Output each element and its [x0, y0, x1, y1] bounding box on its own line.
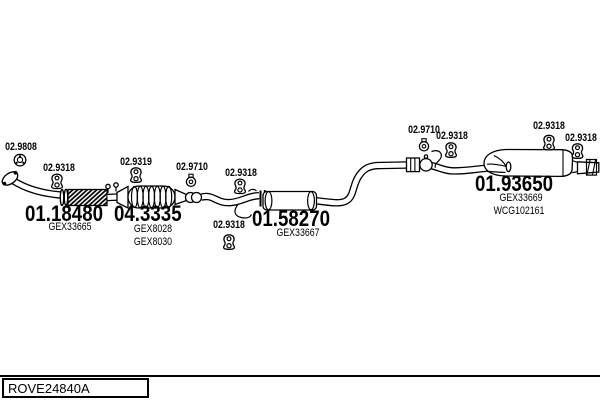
- oem-ref-label: GEX33669: [494, 192, 548, 205]
- oem-ref-label: GEX8030: [129, 236, 177, 249]
- oem-ref-label: WCG102161: [487, 205, 551, 218]
- pipe-sleeve-joint: [407, 155, 433, 172]
- rubber-mount-icon[interactable]: [572, 144, 583, 159]
- flange-gasket-icon[interactable]: [14, 154, 26, 166]
- fitting-number-label[interactable]: 02.9318: [221, 167, 261, 180]
- footer-divider-line: [0, 375, 600, 377]
- rubber-mount-icon[interactable]: [235, 179, 246, 194]
- support-bracket-hook: [235, 205, 251, 219]
- oem-ref-label: GEX33665: [43, 221, 97, 234]
- part-number-label[interactable]: 04.3335: [114, 203, 194, 225]
- clamp-ring-icon[interactable]: [419, 139, 428, 151]
- fitting-number-label[interactable]: 02.9808: [1, 141, 41, 154]
- fitting-number-label[interactable]: 02.9319: [116, 156, 156, 169]
- fitting-number-label[interactable]: 02.9710: [172, 161, 212, 174]
- fitting-number-label[interactable]: 02.9318: [561, 132, 600, 145]
- diagram-ref-code: ROVE24840A: [4, 381, 90, 397]
- fitting-number-label[interactable]: 02.9318: [432, 130, 472, 143]
- connecting-pipe: [316, 165, 407, 203]
- rubber-mount-icon[interactable]: [131, 168, 142, 183]
- oem-ref-label: GEX8028: [129, 223, 177, 236]
- rubber-mount-icon[interactable]: [446, 143, 457, 158]
- oem-ref-label: GEX33667: [271, 227, 325, 240]
- rubber-mount-icon[interactable]: [52, 174, 63, 189]
- diagram-ref-box: ROVE24840A: [2, 378, 149, 398]
- mid-pipe: [201, 196, 259, 203]
- fitting-number-label[interactable]: 02.9318: [209, 219, 249, 232]
- clamp-ring-icon[interactable]: [186, 174, 195, 186]
- rubber-mount-icon[interactable]: [224, 235, 235, 250]
- fitting-number-label[interactable]: 02.9318: [39, 162, 79, 175]
- exhaust-parts-diagram: 02.9808 02.9318 02.9319 02.9710 02.9318 …: [0, 0, 600, 400]
- rubber-mount-icon[interactable]: [544, 135, 555, 150]
- tail-pipe: [572, 160, 599, 176]
